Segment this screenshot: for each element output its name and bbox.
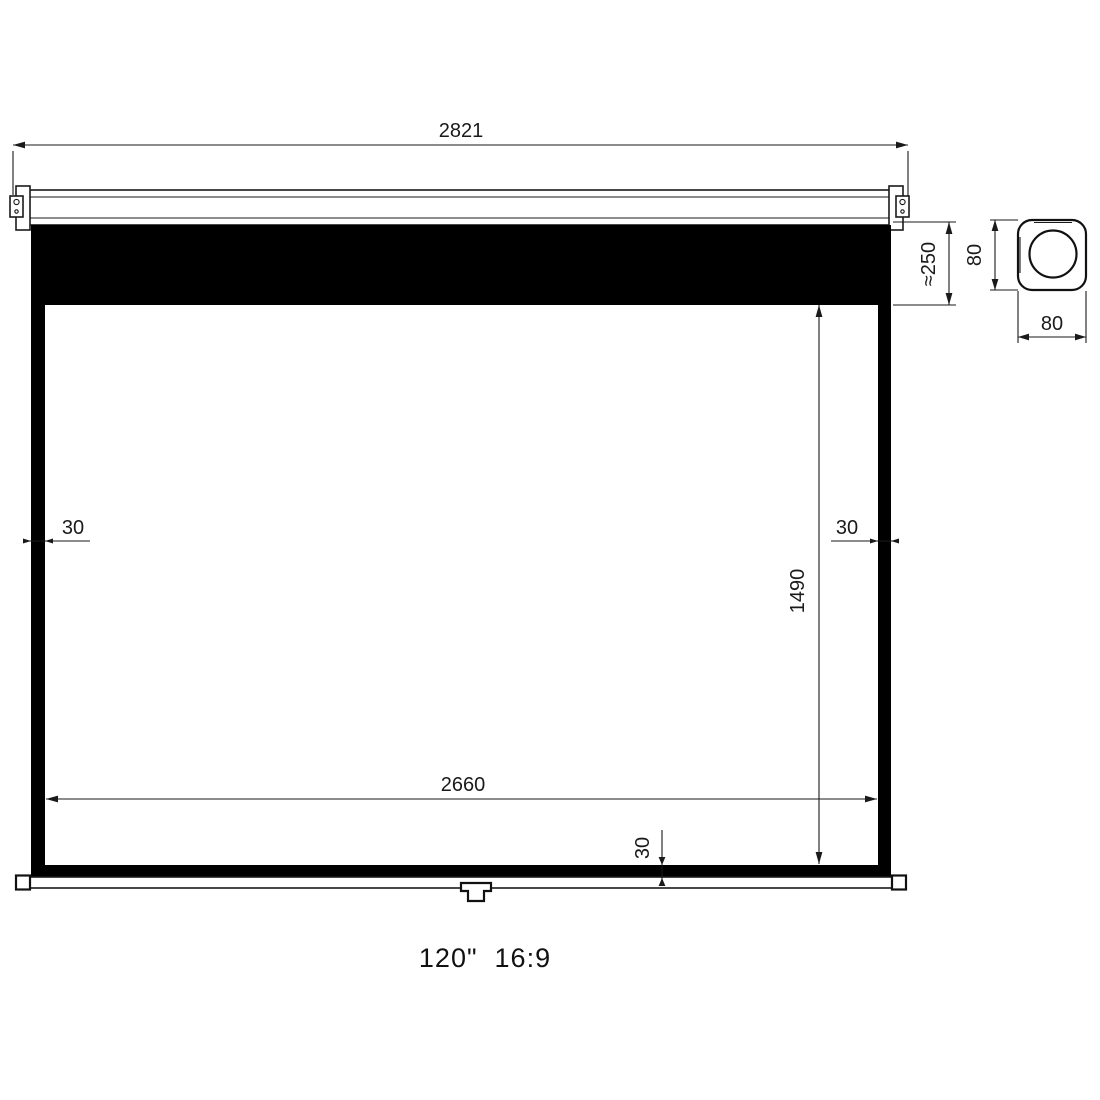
- arrowhead: [992, 279, 999, 290]
- arrowhead: [946, 293, 953, 305]
- dim-label-left-border: 30: [62, 517, 84, 539]
- housing-body: [18, 190, 901, 225]
- housing-cross-section: 80 80: [964, 220, 1086, 343]
- arrowhead: [946, 222, 953, 234]
- dim-top-drop: ≈250: [893, 222, 956, 305]
- drawing-canvas: 2821 ≈250: [0, 0, 1100, 1100]
- dim-label-case-height: 80: [964, 244, 986, 266]
- slat-endcap-left: [16, 876, 30, 890]
- bottom-slat-bar: [16, 876, 906, 902]
- dim-label-overall-width: 2821: [439, 120, 484, 142]
- size-caption: 120" 16:9: [419, 943, 551, 973]
- slat-endcap-right: [892, 876, 906, 890]
- dim-label-right-border: 30: [836, 517, 858, 539]
- arrowhead: [13, 142, 25, 149]
- arrowhead: [992, 220, 999, 231]
- arrowhead: [891, 539, 899, 544]
- dim-label-case-depth: 80: [1041, 313, 1063, 335]
- dim-label-top-drop: ≈250: [918, 242, 940, 286]
- dim-label-bottom-border: 30: [632, 837, 654, 859]
- technical-drawing-page: 2821 ≈250: [0, 0, 1100, 1100]
- pull-handle: [461, 883, 491, 901]
- dim-label-viewing-width: 2660: [441, 774, 486, 796]
- arrowhead: [1018, 334, 1029, 341]
- arrowhead: [896, 142, 908, 149]
- dim-label-viewing-height: 1490: [787, 569, 809, 614]
- screen-housing: [10, 186, 909, 230]
- arrowhead: [1075, 334, 1086, 341]
- arrowhead: [23, 539, 31, 544]
